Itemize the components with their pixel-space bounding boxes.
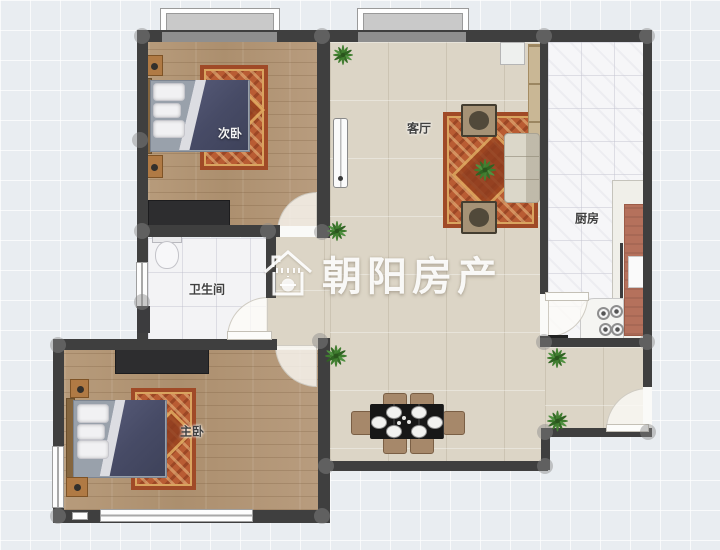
wall-joint bbox=[640, 424, 656, 440]
dining-chair bbox=[443, 411, 465, 435]
bathroom-cabinet bbox=[137, 306, 150, 333]
room-label-living-room: 客厅 bbox=[407, 120, 431, 137]
wall-joint bbox=[50, 337, 66, 353]
room-living-room bbox=[330, 42, 545, 463]
wall-master-top bbox=[53, 339, 277, 350]
armchair bbox=[461, 201, 497, 234]
room-label-secondary-bedroom: 次卧 bbox=[218, 125, 242, 142]
room-label-kitchen: 厨房 bbox=[575, 210, 599, 227]
wall-joint bbox=[314, 508, 330, 524]
wall-joint bbox=[134, 223, 150, 239]
toilet bbox=[155, 241, 179, 269]
door-opening-entrance bbox=[643, 387, 652, 428]
bathroom-door-leaf bbox=[227, 331, 272, 340]
window-master-left bbox=[52, 446, 64, 508]
wall-joint bbox=[318, 458, 334, 474]
window-master-bottom-small bbox=[72, 512, 88, 520]
wall-joint bbox=[536, 334, 552, 350]
wall-joint bbox=[639, 28, 655, 44]
wall-joint bbox=[50, 508, 66, 524]
room-label-master-bedroom: 主卧 bbox=[180, 423, 204, 440]
wall-hall-right bbox=[317, 30, 330, 238]
wall-kitchen-left bbox=[540, 30, 548, 295]
armchair bbox=[461, 104, 497, 137]
kitchen-door-leaf bbox=[545, 292, 589, 301]
wall-joint bbox=[314, 28, 330, 44]
window-master-bottom bbox=[100, 509, 253, 522]
nightstand bbox=[66, 477, 88, 497]
dining-chair bbox=[410, 437, 434, 454]
plant-icon bbox=[546, 346, 568, 370]
plant-icon bbox=[332, 44, 354, 66]
wall-joint bbox=[134, 28, 150, 44]
wall-joint bbox=[132, 132, 148, 148]
wall-joint bbox=[536, 28, 552, 44]
wall-bottom-dining bbox=[322, 461, 548, 471]
radiator bbox=[333, 118, 348, 188]
bed-master bbox=[66, 398, 166, 478]
wall-joint bbox=[260, 223, 276, 239]
sofa bbox=[504, 133, 540, 203]
plant-icon bbox=[324, 344, 348, 368]
wall-joint bbox=[134, 294, 150, 310]
wall-joint bbox=[312, 333, 328, 349]
room-label-bathroom: 卫生间 bbox=[189, 281, 225, 298]
nightstand bbox=[70, 379, 89, 398]
wall-joint bbox=[537, 424, 553, 440]
counter-edge bbox=[620, 243, 623, 298]
window-sill bbox=[162, 32, 277, 42]
plant-icon bbox=[473, 158, 497, 182]
wall-joint bbox=[537, 458, 553, 474]
utility-box bbox=[500, 42, 525, 65]
dining-table bbox=[370, 404, 444, 439]
wall-joint bbox=[639, 334, 655, 350]
window-sill bbox=[358, 32, 466, 42]
floorplan-canvas: 次卧 客厅 厨房 卫生间 主卧 朝阳房产 bbox=[0, 0, 720, 550]
dining-chair bbox=[383, 437, 407, 454]
door-opening-bedroom2 bbox=[280, 226, 317, 237]
wall-joint bbox=[314, 224, 330, 240]
